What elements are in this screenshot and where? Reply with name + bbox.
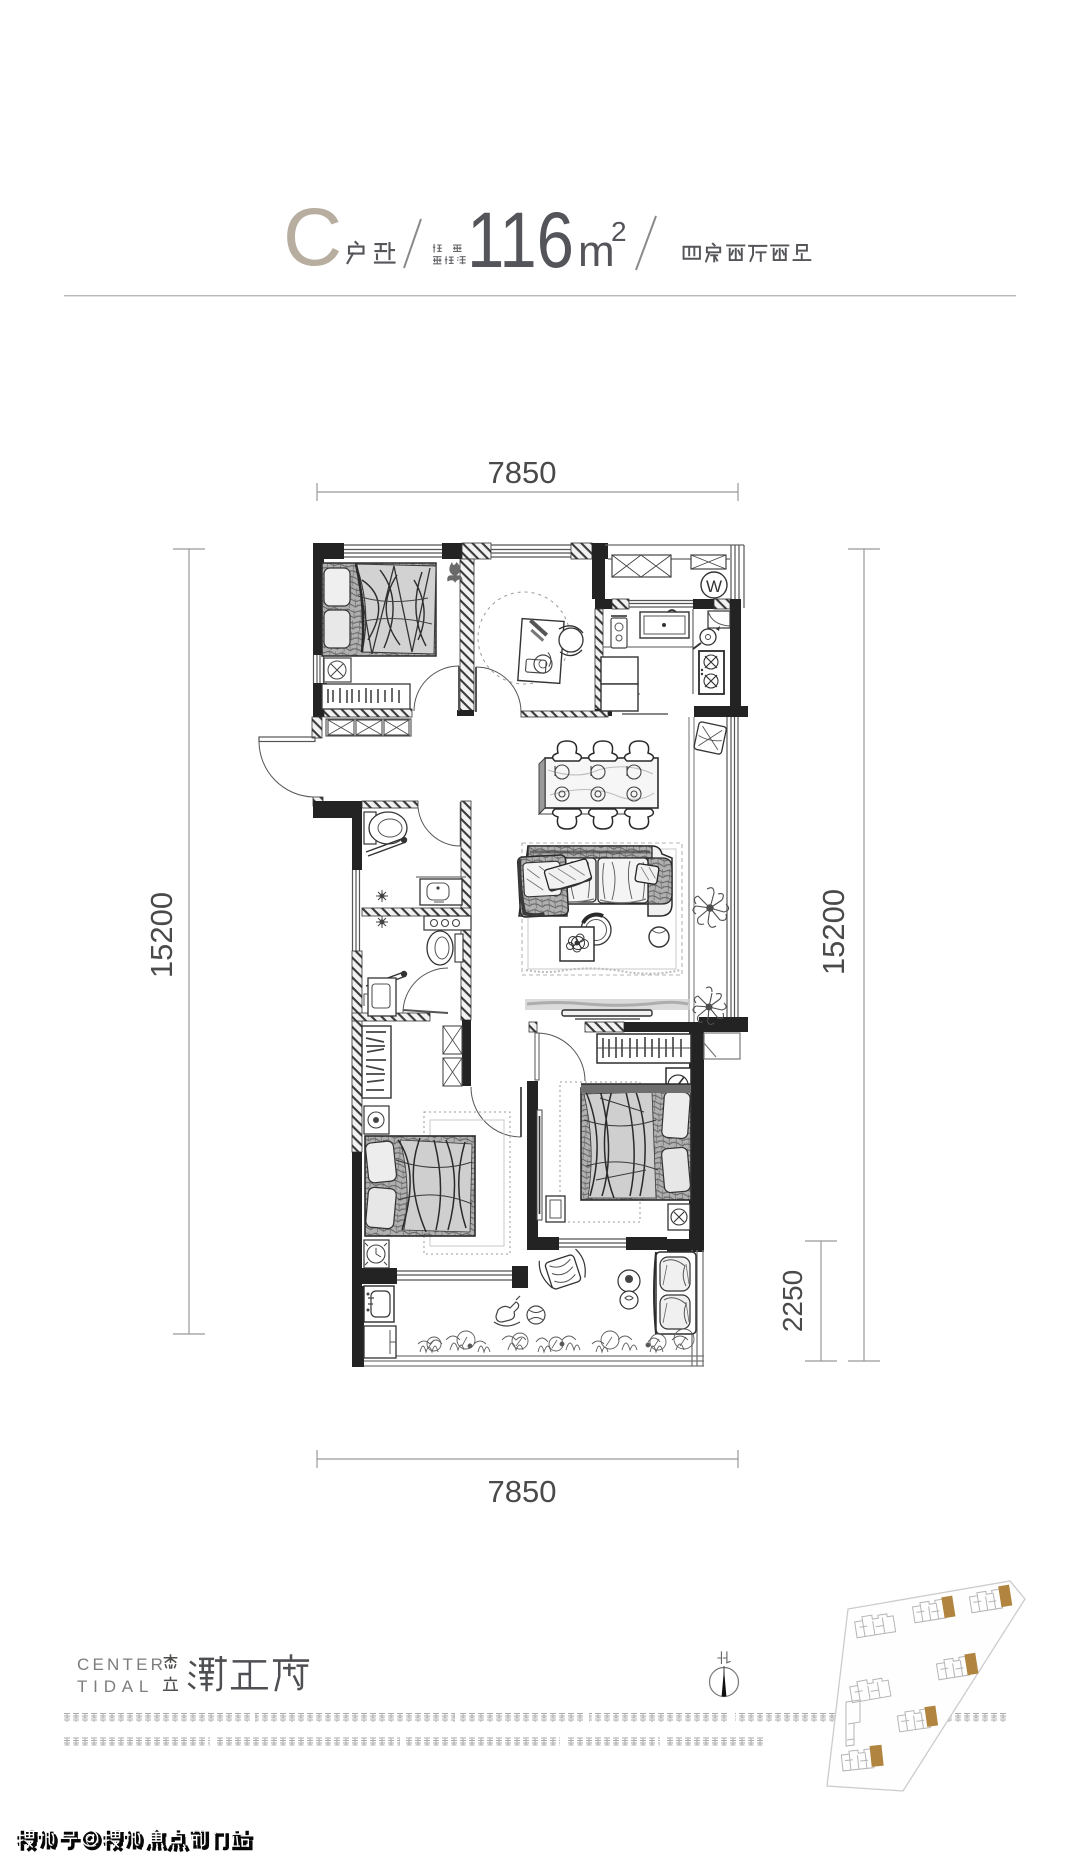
svg-text:2: 2 [611,216,627,247]
svg-text:m: m [578,227,615,276]
svg-text:116: 116 [467,195,574,284]
svg-text:7850: 7850 [488,1474,557,1509]
svg-text:2250: 2250 [777,1270,808,1332]
svg-text:TIDAL: TIDAL [77,1677,154,1696]
svg-text:7850: 7850 [488,455,557,490]
svg-text:15200: 15200 [816,889,851,975]
svg-text:W: W [706,577,722,596]
svg-text:CENTER: CENTER [77,1655,166,1674]
svg-text:15200: 15200 [144,892,179,978]
svg-text:C: C [283,192,342,283]
